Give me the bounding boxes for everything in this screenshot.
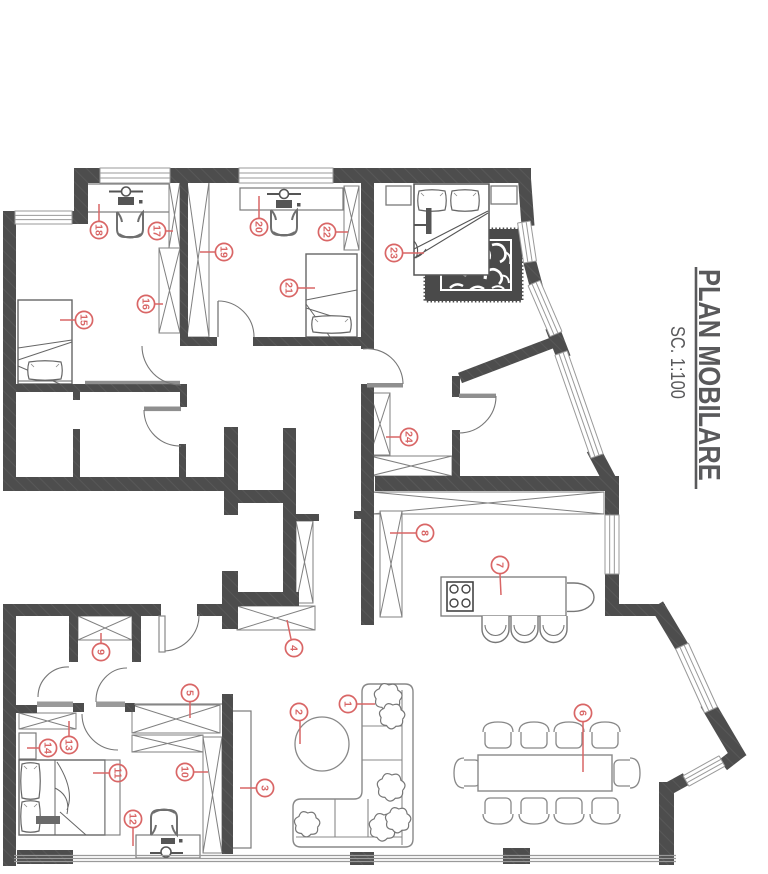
- svg-text:10: 10: [178, 766, 190, 778]
- svg-text:23: 23: [387, 247, 399, 259]
- svg-text:19: 19: [217, 246, 229, 258]
- svg-text:11: 11: [111, 767, 123, 778]
- svg-text:8: 8: [418, 530, 430, 536]
- svg-text:15: 15: [77, 314, 89, 326]
- svg-text:1: 1: [341, 701, 353, 707]
- svg-text:9: 9: [94, 649, 106, 655]
- svg-text:20: 20: [252, 221, 264, 233]
- svg-text:PLAN MOBILARE: PLAN MOBILARE: [691, 269, 726, 481]
- svg-text:6: 6: [576, 710, 588, 716]
- svg-text:13: 13: [62, 739, 74, 751]
- svg-text:5: 5: [183, 690, 195, 696]
- svg-text:3: 3: [258, 785, 270, 791]
- svg-text:18: 18: [92, 224, 104, 236]
- svg-text:14: 14: [41, 742, 53, 754]
- svg-text:16: 16: [139, 298, 151, 310]
- svg-text:22: 22: [320, 226, 332, 238]
- svg-text:4: 4: [287, 645, 299, 651]
- svg-text:24: 24: [402, 431, 414, 443]
- svg-text:7: 7: [493, 562, 505, 568]
- svg-text:12: 12: [126, 813, 138, 825]
- svg-text:2: 2: [292, 709, 304, 715]
- svg-text:17: 17: [150, 225, 162, 237]
- svg-text:21: 21: [282, 282, 294, 294]
- svg-text:SC. 1:100: SC. 1:100: [667, 326, 690, 399]
